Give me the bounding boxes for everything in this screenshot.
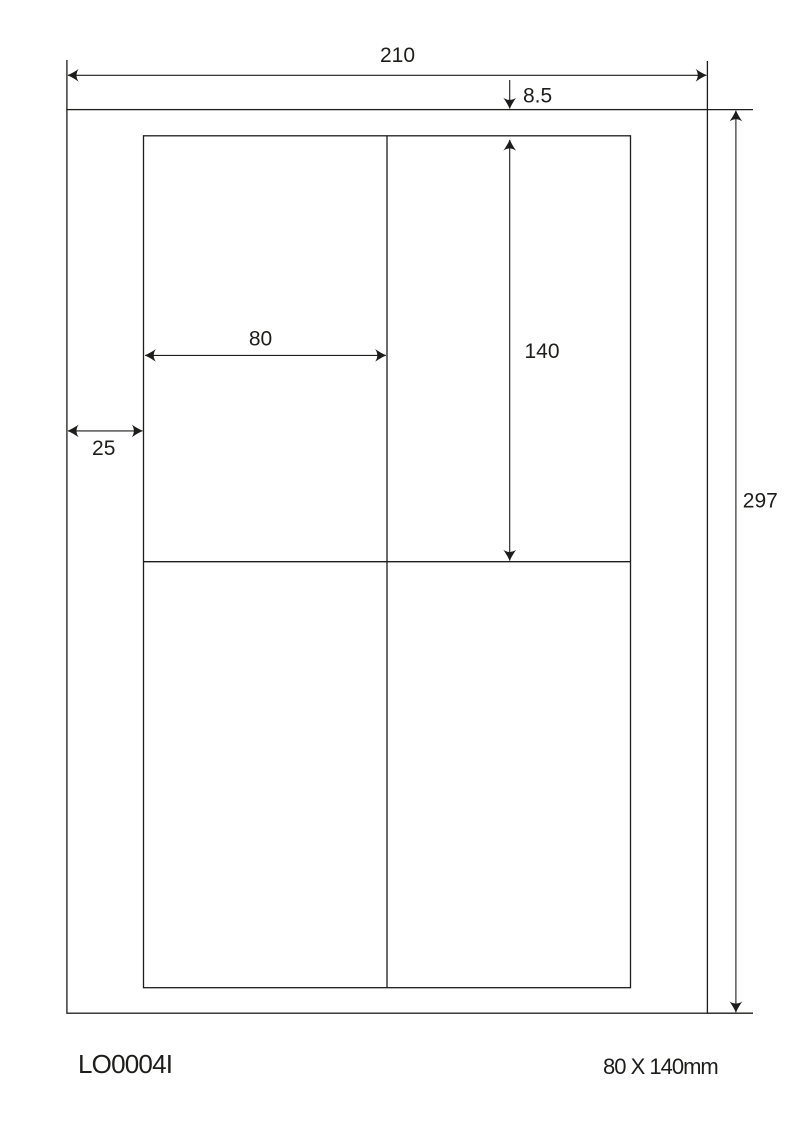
svg-text:25: 25 <box>92 437 115 460</box>
svg-text:80 X 140mm: 80 X 140mm <box>603 1054 718 1079</box>
svg-text:210: 210 <box>380 44 415 67</box>
svg-text:8.5: 8.5 <box>523 84 552 107</box>
svg-text:80: 80 <box>249 328 272 351</box>
svg-text:297: 297 <box>743 490 778 513</box>
svg-text:140: 140 <box>525 340 560 363</box>
svg-text:LO0004I: LO0004I <box>78 1049 172 1079</box>
